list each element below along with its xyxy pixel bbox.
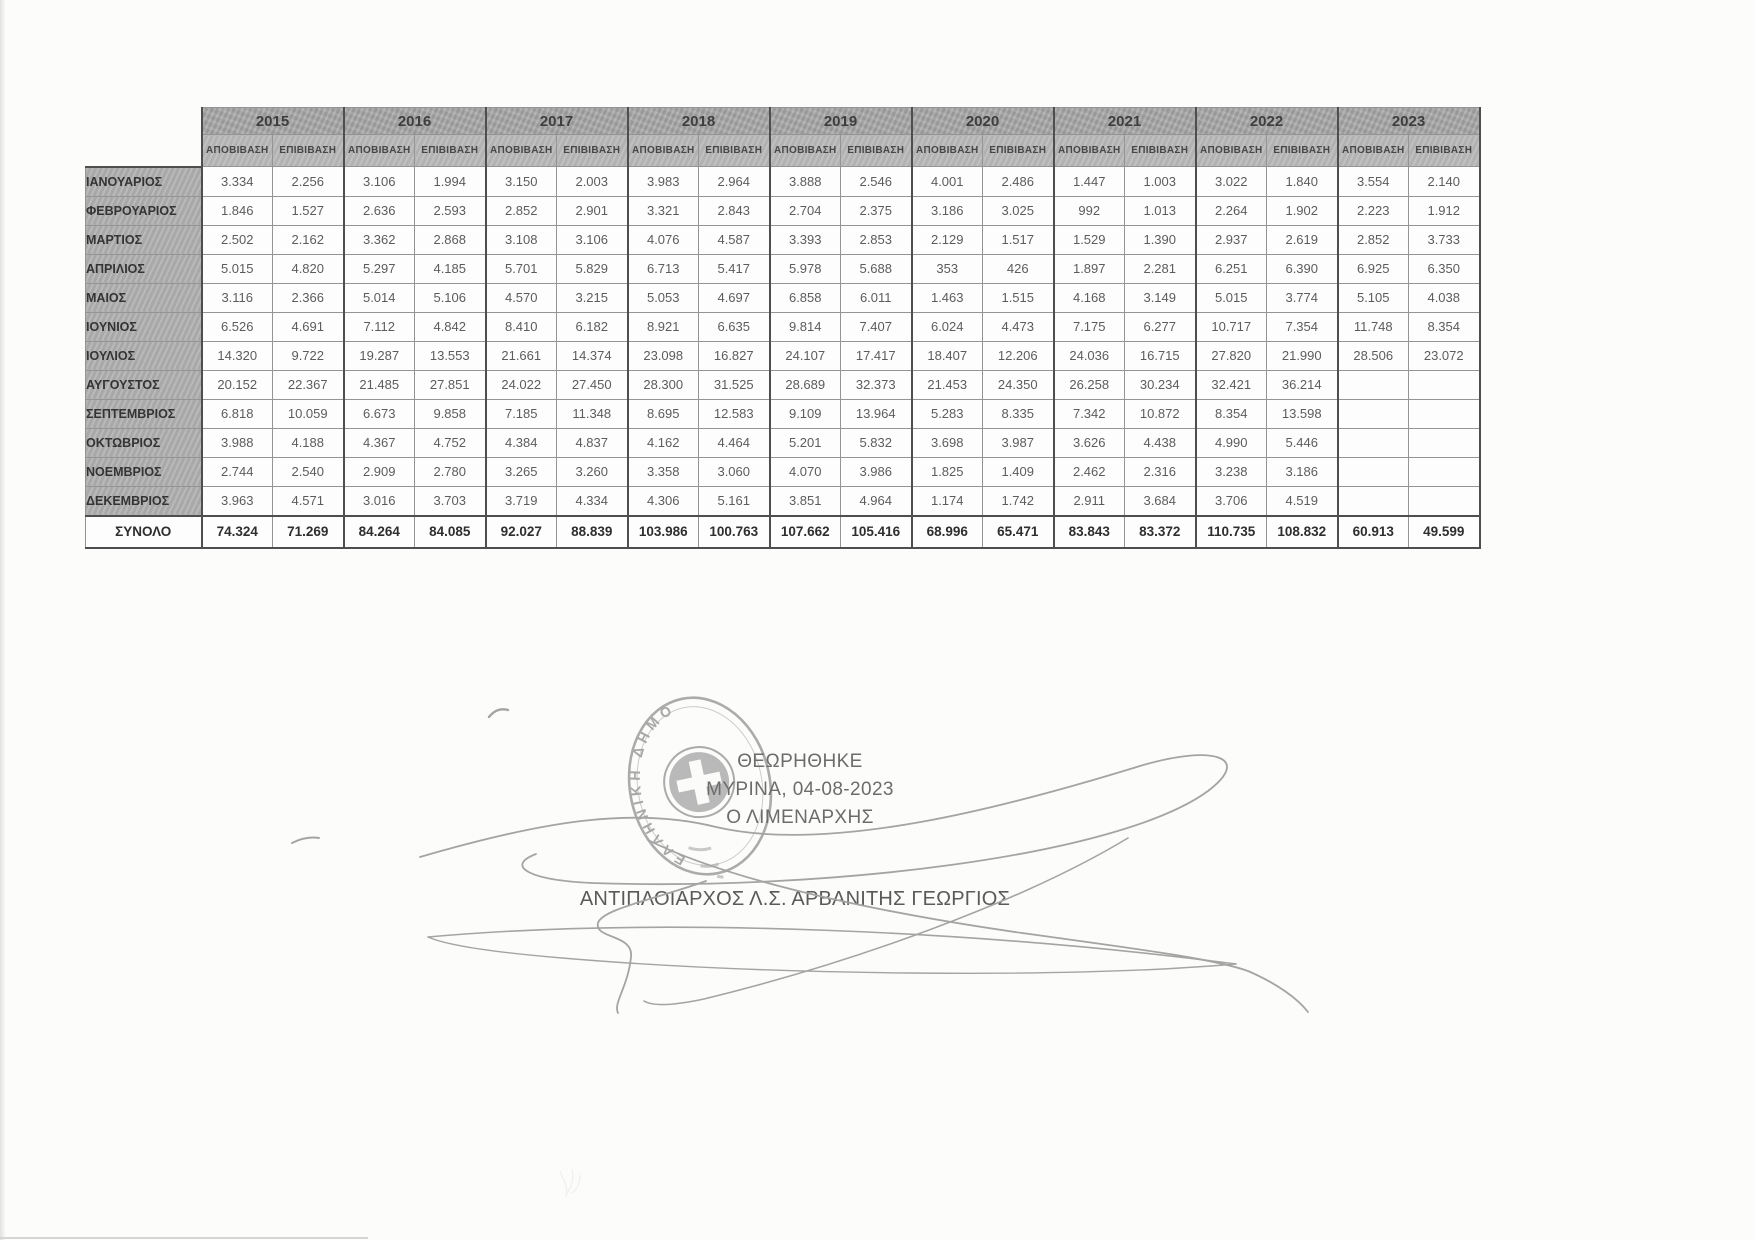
data-cell: 5.829 — [557, 254, 628, 283]
data-cell: 7.342 — [1054, 399, 1125, 428]
subheader-arrival: ΑΠΟΒΙΒΑΣΗ — [628, 135, 699, 167]
total-cell: 100.763 — [699, 516, 770, 548]
data-cell: 2.868 — [415, 225, 486, 254]
data-cell: 3.774 — [1267, 283, 1338, 312]
data-cell: 4.168 — [1054, 283, 1125, 312]
data-cell: 2.744 — [202, 457, 273, 486]
subheader-departure: ΕΠΙΒΙΒΑΣΗ — [1125, 135, 1196, 167]
total-cell: 103.986 — [628, 516, 699, 548]
data-cell: 1.515 — [983, 283, 1054, 312]
subheader-departure: ΕΠΙΒΙΒΑΣΗ — [983, 135, 1054, 167]
subheader-departure: ΕΠΙΒΙΒΑΣΗ — [415, 135, 486, 167]
total-label: ΣΥΝΟΛΟ — [86, 516, 202, 548]
data-cell: 10.059 — [273, 399, 344, 428]
data-cell: 16.715 — [1125, 341, 1196, 370]
approval-line-2: ΜΥΡΙΝΑ, 04-08-2023 — [595, 776, 1005, 804]
subheader-arrival: ΑΠΟΒΙΒΑΣΗ — [486, 135, 557, 167]
data-cell — [1338, 486, 1409, 516]
data-cell: 2.003 — [557, 167, 628, 197]
subheader-arrival: ΑΠΟΒΙΒΑΣΗ — [770, 135, 841, 167]
table-row: ΙΟΥΛΙΟΣ14.3209.72219.28713.55321.66114.3… — [86, 341, 1480, 370]
data-cell: 1.013 — [1125, 196, 1196, 225]
year-header-2015: 2015 — [202, 108, 344, 135]
total-cell: 74.324 — [202, 516, 273, 548]
data-cell: 24.350 — [983, 370, 1054, 399]
data-cell: 11.748 — [1338, 312, 1409, 341]
data-cell: 1.897 — [1054, 254, 1125, 283]
data-cell: 3.108 — [486, 225, 557, 254]
subheader-arrival: ΑΠΟΒΙΒΑΣΗ — [1338, 135, 1409, 167]
table-foot: ΣΥΝΟΛΟ74.32471.26984.26484.08592.02788.8… — [86, 516, 1480, 548]
subheader-departure: ΕΠΙΒΙΒΑΣΗ — [699, 135, 770, 167]
data-cell: 8.921 — [628, 312, 699, 341]
data-cell: 5.283 — [912, 399, 983, 428]
data-cell: 13.598 — [1267, 399, 1338, 428]
month-label: ΣΕΠΤΕΜΒΡΙΟΣ — [86, 399, 202, 428]
data-cell: 3.362 — [344, 225, 415, 254]
data-cell: 1.463 — [912, 283, 983, 312]
stamp-bottom-marks — [689, 842, 724, 883]
data-cell: 3.684 — [1125, 486, 1196, 516]
data-cell: 31.525 — [699, 370, 770, 399]
data-cell: 21.453 — [912, 370, 983, 399]
data-cell — [1338, 399, 1409, 428]
data-cell: 4.990 — [1196, 428, 1267, 457]
approval-block: ΘΕΩΡΗΘΗΚΕ ΜΥΡΙΝΑ, 04-08-2023 Ο ΛΙΜΕΝΑΡΧΗ… — [595, 748, 1005, 832]
signature-flick — [489, 709, 508, 717]
subheader-departure: ΕΠΙΒΙΒΑΣΗ — [841, 135, 912, 167]
table-row: ΙΟΥΝΙΟΣ6.5264.6917.1124.8428.4106.1828.9… — [86, 312, 1480, 341]
data-cell: 3.987 — [983, 428, 1054, 457]
total-cell: 83.843 — [1054, 516, 1125, 548]
data-cell: 7.407 — [841, 312, 912, 341]
data-cell: 426 — [983, 254, 1054, 283]
total-cell: 88.839 — [557, 516, 628, 548]
data-cell: 1.529 — [1054, 225, 1125, 254]
month-label: ΑΠΡΙΛΙΟΣ — [86, 254, 202, 283]
data-cell: 2.853 — [841, 225, 912, 254]
total-cell: 71.269 — [273, 516, 344, 548]
month-label: ΙΟΥΛΙΟΣ — [86, 341, 202, 370]
passenger-statistics-table: 201520162017201820192020202120222023 ΑΠΟ… — [85, 107, 1481, 549]
data-cell: 27.851 — [415, 370, 486, 399]
total-row: ΣΥΝΟΛΟ74.32471.26984.26484.08592.02788.8… — [86, 516, 1480, 548]
scan-edge-shadow — [0, 0, 5, 1240]
data-cell: 4.384 — [486, 428, 557, 457]
data-cell: 6.390 — [1267, 254, 1338, 283]
data-cell: 9.109 — [770, 399, 841, 428]
table-row: ΟΚΤΩΒΡΙΟΣ3.9884.1884.3674.7524.3844.8374… — [86, 428, 1480, 457]
data-cell: 2.486 — [983, 167, 1054, 197]
data-cell: 4.752 — [415, 428, 486, 457]
data-cell: 3.554 — [1338, 167, 1409, 197]
approval-line-3: Ο ΛΙΜΕΝΑΡΧΗΣ — [595, 804, 1005, 832]
year-header-2021: 2021 — [1054, 108, 1196, 135]
table-row: ΔΕΚΕΜΒΡΙΟΣ3.9634.5713.0163.7033.7194.334… — [86, 486, 1480, 516]
data-cell: 4.162 — [628, 428, 699, 457]
data-cell: 2.223 — [1338, 196, 1409, 225]
table-body: ΙΑΝΟΥΑΡΙΟΣ3.3342.2563.1061.9943.1502.003… — [86, 167, 1480, 516]
data-cell: 1.994 — [415, 167, 486, 197]
data-cell: 3.186 — [912, 196, 983, 225]
data-cell: 4.570 — [486, 283, 557, 312]
data-cell: 3.703 — [415, 486, 486, 516]
data-cell: 24.036 — [1054, 341, 1125, 370]
data-cell: 1.846 — [202, 196, 273, 225]
data-cell: 3.060 — [699, 457, 770, 486]
data-cell: 4.587 — [699, 225, 770, 254]
data-cell: 3.983 — [628, 167, 699, 197]
data-cell: 4.076 — [628, 225, 699, 254]
data-cell: 2.264 — [1196, 196, 1267, 225]
signatory-name: ΑΝΤΙΠΛΟΙΑΡΧΟΣ Λ.Σ. ΑΡΒΑΝΙΤΗΣ ΓΕΩΡΓΙΟΣ — [565, 888, 1025, 911]
data-cell: 7.185 — [486, 399, 557, 428]
subheader-departure: ΕΠΙΒΙΒΑΣΗ — [1267, 135, 1338, 167]
data-cell: 3.986 — [841, 457, 912, 486]
year-header-2023: 2023 — [1338, 108, 1480, 135]
data-cell: 1.447 — [1054, 167, 1125, 197]
data-cell: 5.297 — [344, 254, 415, 283]
table-row: ΜΑΙΟΣ3.1162.3665.0145.1064.5703.2155.053… — [86, 283, 1480, 312]
data-cell: 3.150 — [486, 167, 557, 197]
total-cell: 65.471 — [983, 516, 1054, 548]
data-cell: 3.321 — [628, 196, 699, 225]
year-header-2022: 2022 — [1196, 108, 1338, 135]
data-cell: 1.409 — [983, 457, 1054, 486]
data-cell: 6.251 — [1196, 254, 1267, 283]
data-cell: 1.912 — [1409, 196, 1480, 225]
data-cell: 4.001 — [912, 167, 983, 197]
month-label: ΟΚΤΩΒΡΙΟΣ — [86, 428, 202, 457]
data-cell: 6.858 — [770, 283, 841, 312]
data-cell: 5.978 — [770, 254, 841, 283]
data-cell: 992 — [1054, 196, 1125, 225]
data-cell: 3.888 — [770, 167, 841, 197]
data-cell: 4.691 — [273, 312, 344, 341]
data-cell — [1338, 370, 1409, 399]
data-cell: 1.517 — [983, 225, 1054, 254]
data-cell: 10.872 — [1125, 399, 1196, 428]
data-cell: 3.358 — [628, 457, 699, 486]
data-cell: 2.937 — [1196, 225, 1267, 254]
data-cell — [1409, 457, 1480, 486]
year-header-2019: 2019 — [770, 108, 912, 135]
data-cell: 6.673 — [344, 399, 415, 428]
signature-underline-bottom — [428, 937, 1236, 973]
data-cell: 8.335 — [983, 399, 1054, 428]
data-cell: 2.316 — [1125, 457, 1196, 486]
corner-cell — [86, 108, 202, 135]
data-cell: 3.393 — [770, 225, 841, 254]
subheader-departure: ΕΠΙΒΙΒΑΣΗ — [1409, 135, 1480, 167]
data-cell: 5.015 — [1196, 283, 1267, 312]
data-cell: 6.277 — [1125, 312, 1196, 341]
data-cell: 21.485 — [344, 370, 415, 399]
signature-underline-top — [428, 927, 1236, 964]
data-cell: 7.354 — [1267, 312, 1338, 341]
data-cell: 4.820 — [273, 254, 344, 283]
table-row: ΑΥΓΟΥΣΤΟΣ20.15222.36721.48527.85124.0222… — [86, 370, 1480, 399]
data-cell: 1.390 — [1125, 225, 1196, 254]
data-cell: 12.583 — [699, 399, 770, 428]
data-cell: 3.851 — [770, 486, 841, 516]
total-cell: 107.662 — [770, 516, 841, 548]
data-cell: 2.909 — [344, 457, 415, 486]
total-cell: 68.996 — [912, 516, 983, 548]
subheader-arrival: ΑΠΟΒΙΒΑΣΗ — [1196, 135, 1267, 167]
data-cell: 2.636 — [344, 196, 415, 225]
data-cell: 6.635 — [699, 312, 770, 341]
month-label: ΑΥΓΟΥΣΤΟΣ — [86, 370, 202, 399]
data-cell: 4.038 — [1409, 283, 1480, 312]
year-header-row: 201520162017201820192020202120222023 — [86, 108, 1480, 135]
data-cell: 2.540 — [273, 457, 344, 486]
total-cell: 92.027 — [486, 516, 557, 548]
data-cell: 24.022 — [486, 370, 557, 399]
total-cell: 84.264 — [344, 516, 415, 548]
data-cell: 2.704 — [770, 196, 841, 225]
data-cell: 7.175 — [1054, 312, 1125, 341]
data-cell: 4.571 — [273, 486, 344, 516]
data-cell: 5.201 — [770, 428, 841, 457]
data-cell: 21.661 — [486, 341, 557, 370]
data-cell: 13.964 — [841, 399, 912, 428]
data-cell: 353 — [912, 254, 983, 283]
scan-bottom-line — [0, 1237, 368, 1239]
data-cell: 17.417 — [841, 341, 912, 370]
data-cell: 2.462 — [1054, 457, 1125, 486]
data-cell: 2.843 — [699, 196, 770, 225]
data-cell: 2.852 — [1338, 225, 1409, 254]
data-cell: 4.697 — [699, 283, 770, 312]
data-cell: 8.354 — [1196, 399, 1267, 428]
data-cell: 3.626 — [1054, 428, 1125, 457]
data-cell: 5.701 — [486, 254, 557, 283]
table-row: ΦΕΒΡΟΥΑΡΙΟΣ1.8461.5272.6362.5932.8522.90… — [86, 196, 1480, 225]
data-cell: 4.185 — [415, 254, 486, 283]
data-cell: 30.234 — [1125, 370, 1196, 399]
data-cell: 2.619 — [1267, 225, 1338, 254]
data-cell: 3.733 — [1409, 225, 1480, 254]
data-cell: 32.421 — [1196, 370, 1267, 399]
total-cell: 110.735 — [1196, 516, 1267, 548]
data-cell: 2.256 — [273, 167, 344, 197]
data-cell: 6.925 — [1338, 254, 1409, 283]
subheader-arrival: ΑΠΟΒΙΒΑΣΗ — [344, 135, 415, 167]
signature-left-dash — [292, 838, 319, 843]
data-cell: 2.546 — [841, 167, 912, 197]
data-cell: 3.106 — [557, 225, 628, 254]
subheader-departure: ΕΠΙΒΙΒΑΣΗ — [557, 135, 628, 167]
data-cell: 11.348 — [557, 399, 628, 428]
data-cell: 16.827 — [699, 341, 770, 370]
subheader-arrival: ΑΠΟΒΙΒΑΣΗ — [202, 135, 273, 167]
data-cell: 28.300 — [628, 370, 699, 399]
data-cell: 3.116 — [202, 283, 273, 312]
data-cell: 8.410 — [486, 312, 557, 341]
year-header-2020: 2020 — [912, 108, 1054, 135]
data-cell: 2.281 — [1125, 254, 1196, 283]
data-cell: 1.174 — [912, 486, 983, 516]
data-cell: 6.818 — [202, 399, 273, 428]
data-cell — [1409, 486, 1480, 516]
data-cell: 2.162 — [273, 225, 344, 254]
data-cell: 4.188 — [273, 428, 344, 457]
subheader-arrival: ΑΠΟΒΙΒΑΣΗ — [1054, 135, 1125, 167]
data-cell: 4.306 — [628, 486, 699, 516]
data-cell: 4.964 — [841, 486, 912, 516]
data-cell: 3.022 — [1196, 167, 1267, 197]
data-cell: 20.152 — [202, 370, 273, 399]
data-cell: 6.182 — [557, 312, 628, 341]
data-cell: 5.106 — [415, 283, 486, 312]
data-cell: 2.593 — [415, 196, 486, 225]
data-cell: 5.105 — [1338, 283, 1409, 312]
data-cell — [1338, 457, 1409, 486]
data-cell: 28.689 — [770, 370, 841, 399]
data-cell: 6.713 — [628, 254, 699, 283]
data-cell: 2.911 — [1054, 486, 1125, 516]
data-cell — [1409, 399, 1480, 428]
data-cell: 32.373 — [841, 370, 912, 399]
data-cell — [1409, 370, 1480, 399]
total-cell: 83.372 — [1125, 516, 1196, 548]
data-cell: 5.688 — [841, 254, 912, 283]
data-cell: 3.238 — [1196, 457, 1267, 486]
data-cell: 4.842 — [415, 312, 486, 341]
data-cell: 4.367 — [344, 428, 415, 457]
data-cell: 27.820 — [1196, 341, 1267, 370]
data-cell: 36.214 — [1267, 370, 1338, 399]
sub-header-row: ΑΠΟΒΙΒΑΣΗΕΠΙΒΙΒΑΣΗΑΠΟΒΙΒΑΣΗΕΠΙΒΙΒΑΣΗΑΠΟΒ… — [86, 135, 1480, 167]
data-cell: 2.375 — [841, 196, 912, 225]
month-label: ΝΟΕΜΒΡΙΟΣ — [86, 457, 202, 486]
data-cell: 1.742 — [983, 486, 1054, 516]
data-cell: 8.354 — [1409, 312, 1480, 341]
data-cell: 22.367 — [273, 370, 344, 399]
data-cell: 9.858 — [415, 399, 486, 428]
data-cell: 4.464 — [699, 428, 770, 457]
data-cell: 3.698 — [912, 428, 983, 457]
data-cell: 2.502 — [202, 225, 273, 254]
table-row: ΑΠΡΙΛΙΟΣ5.0154.8205.2974.1855.7015.8296.… — [86, 254, 1480, 283]
data-cell: 5.053 — [628, 283, 699, 312]
month-label: ΜΑΡΤΙΟΣ — [86, 225, 202, 254]
total-cell: 49.599 — [1409, 516, 1480, 548]
data-cell: 26.258 — [1054, 370, 1125, 399]
corner-cell — [86, 135, 202, 167]
data-cell: 7.112 — [344, 312, 415, 341]
month-label: ΔΕΚΕΜΒΡΙΟΣ — [86, 486, 202, 516]
data-cell: 4.438 — [1125, 428, 1196, 457]
data-cell: 23.098 — [628, 341, 699, 370]
data-cell: 3.106 — [344, 167, 415, 197]
data-cell — [1409, 428, 1480, 457]
data-cell: 3.265 — [486, 457, 557, 486]
data-cell: 3.334 — [202, 167, 273, 197]
data-cell: 28.506 — [1338, 341, 1409, 370]
data-cell: 4.070 — [770, 457, 841, 486]
data-cell: 21.990 — [1267, 341, 1338, 370]
table-row: ΝΟΕΜΒΡΙΟΣ2.7442.5402.9092.7803.2653.2603… — [86, 457, 1480, 486]
total-cell: 105.416 — [841, 516, 912, 548]
data-cell: 12.206 — [983, 341, 1054, 370]
data-cell: 13.553 — [415, 341, 486, 370]
data-cell: 3.706 — [1196, 486, 1267, 516]
data-cell: 3.988 — [202, 428, 273, 457]
data-cell: 3.186 — [1267, 457, 1338, 486]
subheader-arrival: ΑΠΟΒΙΒΑΣΗ — [912, 135, 983, 167]
scanned-page: 201520162017201820192020202120222023 ΑΠΟ… — [0, 0, 1755, 1240]
total-cell: 60.913 — [1338, 516, 1409, 548]
year-header-2016: 2016 — [344, 108, 486, 135]
data-cell: 14.320 — [202, 341, 273, 370]
data-cell: 19.287 — [344, 341, 415, 370]
scan-smudge — [552, 1165, 592, 1205]
data-cell: 5.015 — [202, 254, 273, 283]
data-cell: 1.527 — [273, 196, 344, 225]
data-cell: 18.407 — [912, 341, 983, 370]
data-cell: 5.161 — [699, 486, 770, 516]
data-cell: 3.025 — [983, 196, 1054, 225]
approval-line-1: ΘΕΩΡΗΘΗΚΕ — [595, 748, 1005, 776]
data-cell: 5.417 — [699, 254, 770, 283]
data-cell — [1338, 428, 1409, 457]
data-cell: 2.129 — [912, 225, 983, 254]
month-label: ΙΟΥΝΙΟΣ — [86, 312, 202, 341]
data-cell: 8.695 — [628, 399, 699, 428]
data-cell: 23.072 — [1409, 341, 1480, 370]
data-cell: 6.024 — [912, 312, 983, 341]
data-cell: 2.901 — [557, 196, 628, 225]
subheader-departure: ΕΠΙΒΙΒΑΣΗ — [273, 135, 344, 167]
data-cell: 27.450 — [557, 370, 628, 399]
data-cell: 10.717 — [1196, 312, 1267, 341]
data-cell: 24.107 — [770, 341, 841, 370]
data-cell: 14.374 — [557, 341, 628, 370]
data-cell: 6.526 — [202, 312, 273, 341]
data-cell: 9.722 — [273, 341, 344, 370]
data-cell: 2.780 — [415, 457, 486, 486]
data-cell: 2.140 — [1409, 167, 1480, 197]
data-cell: 1.840 — [1267, 167, 1338, 197]
total-cell: 108.832 — [1267, 516, 1338, 548]
data-cell: 6.350 — [1409, 254, 1480, 283]
data-cell: 2.964 — [699, 167, 770, 197]
data-cell: 3.260 — [557, 457, 628, 486]
total-cell: 84.085 — [415, 516, 486, 548]
data-cell: 4.334 — [557, 486, 628, 516]
data-cell: 6.011 — [841, 283, 912, 312]
data-cell: 5.446 — [1267, 428, 1338, 457]
data-cell: 4.837 — [557, 428, 628, 457]
data-cell: 3.963 — [202, 486, 273, 516]
table-row: ΜΑΡΤΙΟΣ2.5022.1623.3622.8683.1083.1064.0… — [86, 225, 1480, 254]
month-label: ΙΑΝΟΥΑΡΙΟΣ — [86, 167, 202, 197]
data-cell: 1.003 — [1125, 167, 1196, 197]
table-row: ΙΑΝΟΥΑΡΙΟΣ3.3342.2563.1061.9943.1502.003… — [86, 167, 1480, 197]
data-cell: 2.366 — [273, 283, 344, 312]
data-cell: 4.473 — [983, 312, 1054, 341]
table-row: ΣΕΠΤΕΜΒΡΙΟΣ6.81810.0596.6739.8587.18511.… — [86, 399, 1480, 428]
data-cell: 3.149 — [1125, 283, 1196, 312]
data-cell: 3.016 — [344, 486, 415, 516]
data-cell: 1.902 — [1267, 196, 1338, 225]
year-header-2017: 2017 — [486, 108, 628, 135]
data-cell: 3.719 — [486, 486, 557, 516]
data-cell: 2.852 — [486, 196, 557, 225]
month-label: ΦΕΒΡΟΥΑΡΙΟΣ — [86, 196, 202, 225]
